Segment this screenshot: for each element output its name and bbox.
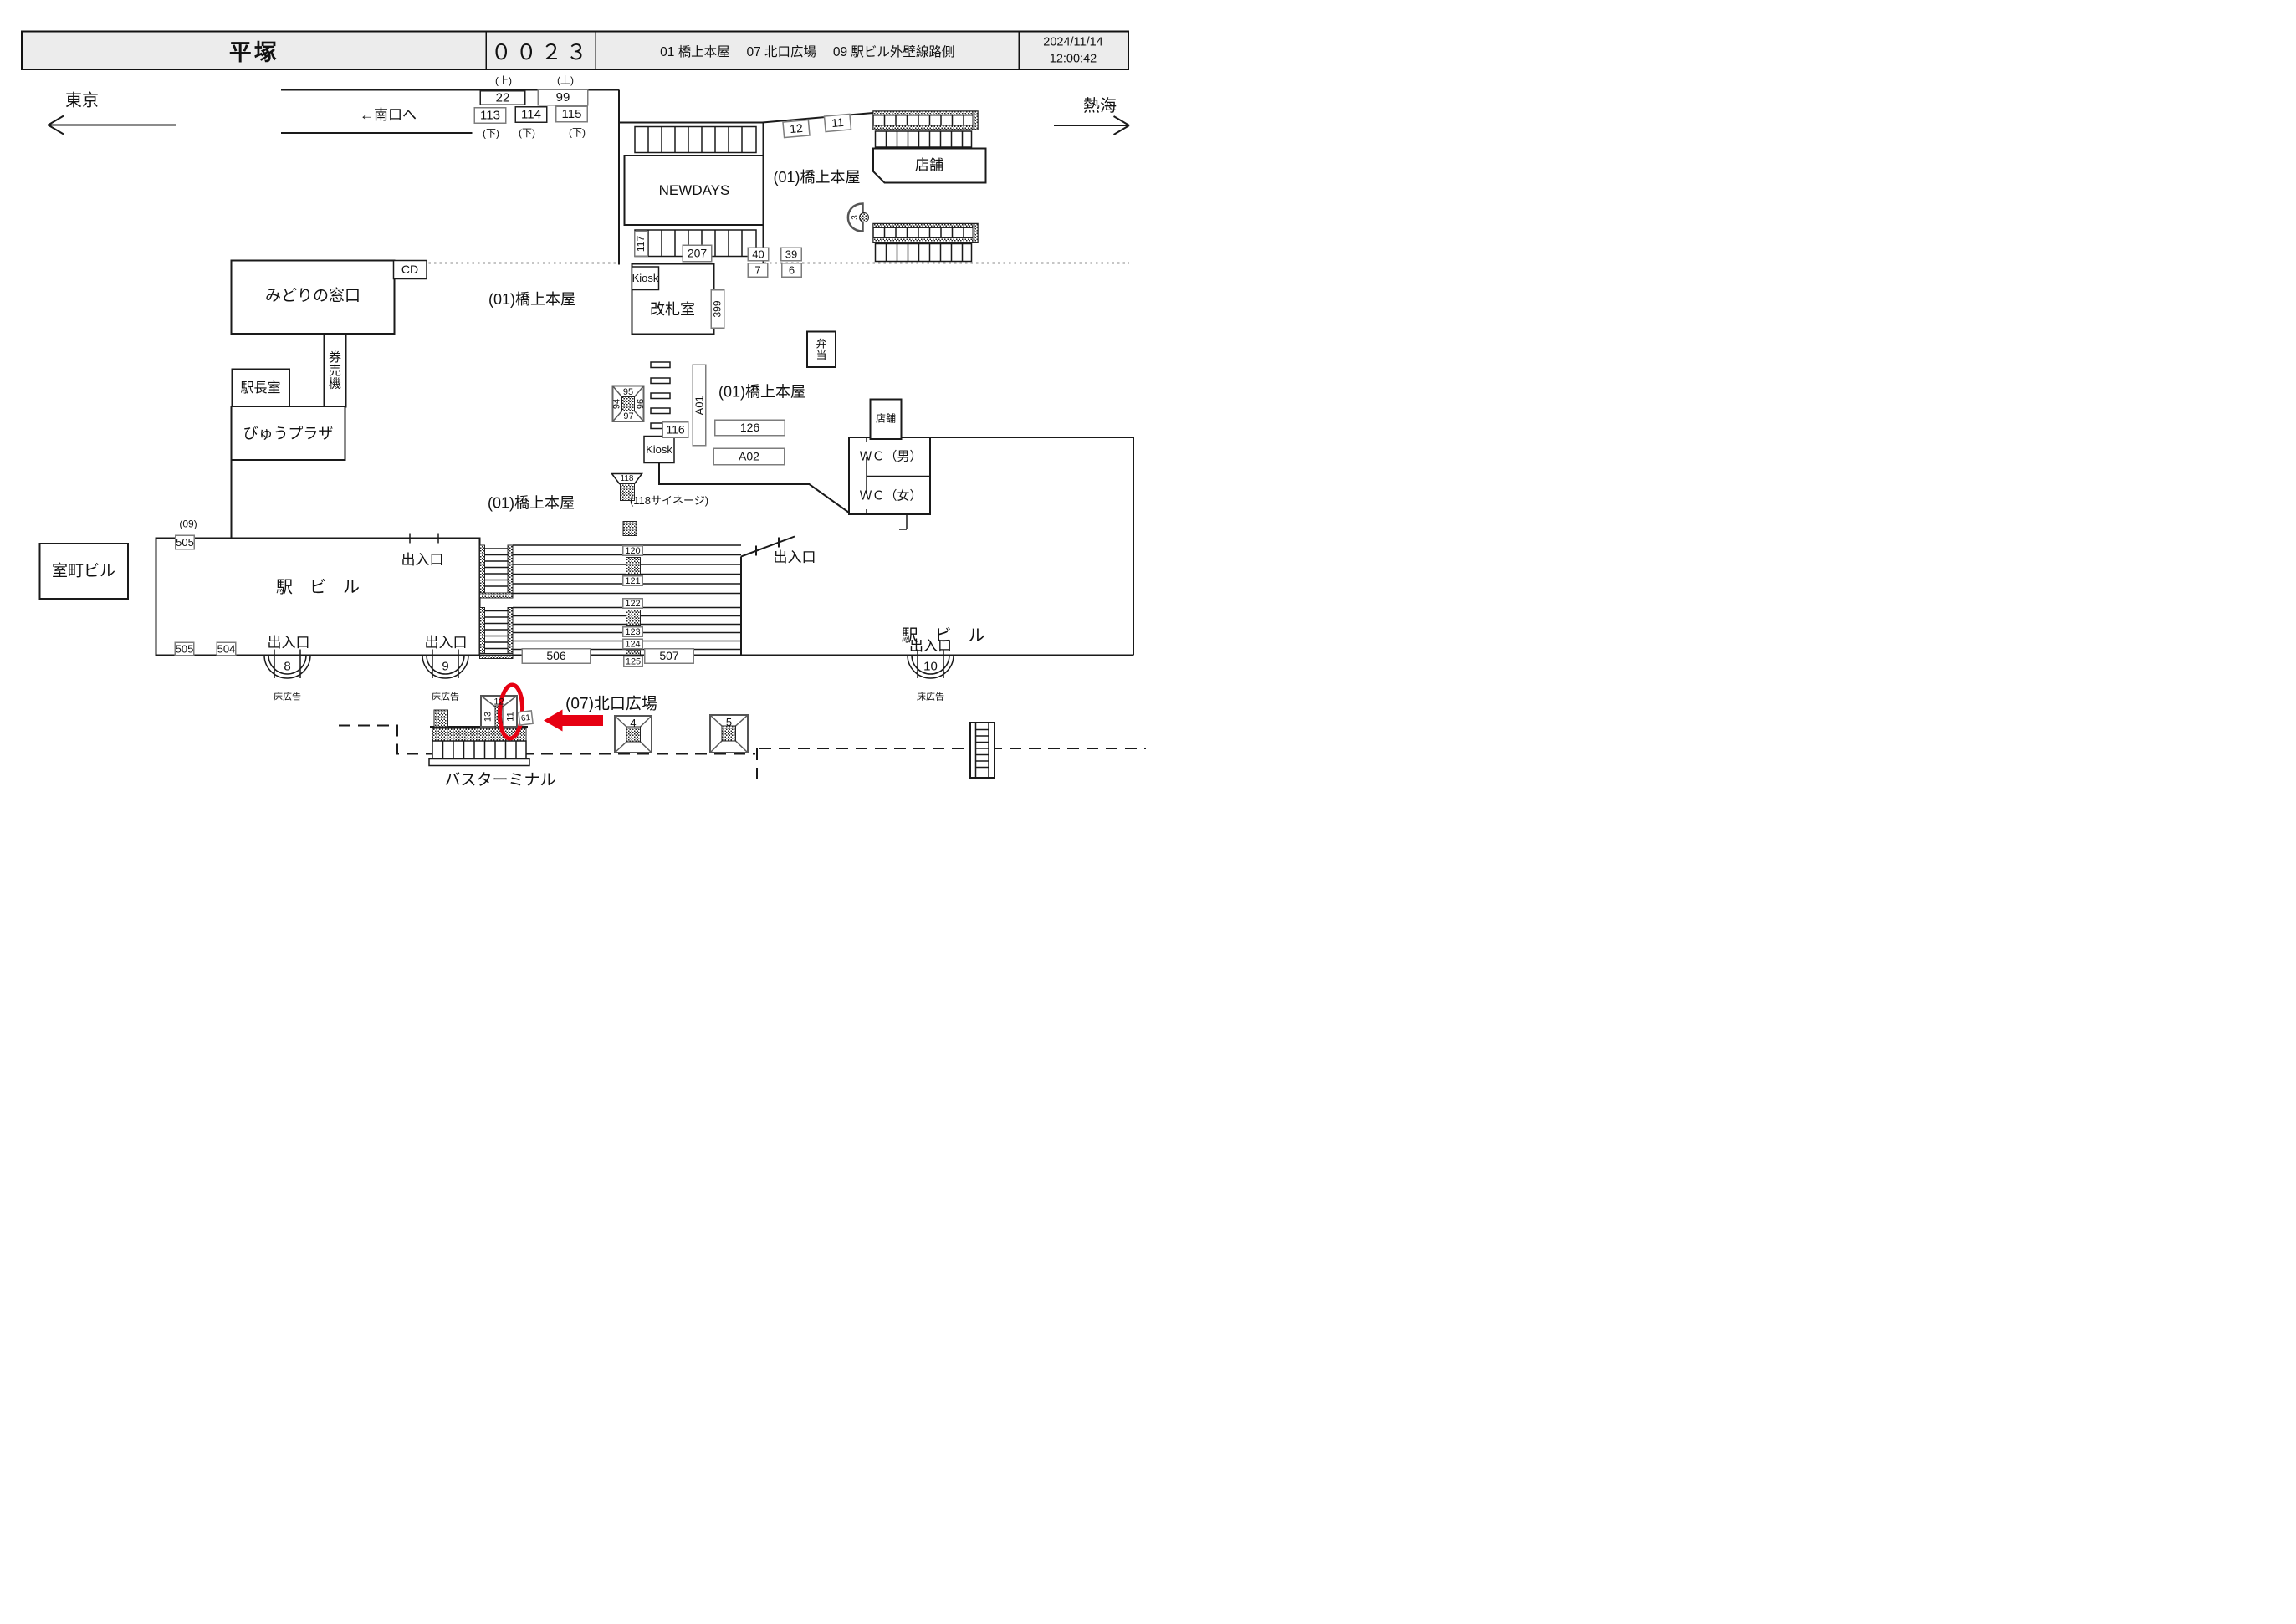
station-name: 平塚 xyxy=(23,33,487,69)
map-code: ００２３ xyxy=(487,33,596,69)
ekicho: 駅長室 xyxy=(240,381,280,396)
ad-120: 120 xyxy=(622,545,643,556)
ekibiru-left: 駅 ビ ル xyxy=(276,579,360,596)
ladder-stairs xyxy=(970,723,995,778)
ad-7: 7 xyxy=(748,263,769,278)
floor-ad-2: 床広告 xyxy=(432,692,459,702)
ad-117: 117 xyxy=(634,231,648,257)
ad-506: 506 xyxy=(522,648,591,664)
p5: 5 xyxy=(726,717,732,728)
header-bar: 平塚 ００２３ 01 橋上本屋 07 北口広場 09 駅ビル外壁線路側 2024… xyxy=(21,31,1129,71)
p94: 94 xyxy=(611,399,621,409)
dir-atami: 熱海 xyxy=(1083,97,1117,115)
stairs-ne-1 xyxy=(876,131,972,147)
floor-ad-1: 床広告 xyxy=(274,692,301,702)
wc-women: ＷＣ（女） xyxy=(860,489,923,503)
staircase-1 xyxy=(480,545,514,598)
zone-01-d: (01)橋上本屋 xyxy=(488,495,575,511)
p4: 4 xyxy=(630,718,636,729)
ad-505-09: 505 xyxy=(175,535,195,550)
bp13: 13 xyxy=(483,712,493,722)
p96: 96 xyxy=(635,399,645,409)
zone-01-a: (01)橋上本屋 xyxy=(773,170,860,186)
newdays: NEWDAYS xyxy=(659,183,730,198)
ad-507: 507 xyxy=(644,648,694,664)
exit-9: 9 xyxy=(442,660,448,673)
ticket-gates xyxy=(651,362,670,429)
floor-ad-3: 床広告 xyxy=(917,692,944,702)
view-plaza: びゅうプラザ xyxy=(243,426,334,442)
kaisatsu: 改札室 xyxy=(650,302,695,318)
muromachi: 室町ビル xyxy=(52,563,115,580)
down-1: (下) xyxy=(483,129,499,140)
shop-1: 店舗 xyxy=(915,158,943,173)
ad-207: 207 xyxy=(683,245,713,263)
exit-10: 10 xyxy=(923,660,938,673)
station-ad-map: 平塚 ００２３ 01 橋上本屋 07 北口広場 09 駅ビル外壁線路側 2024… xyxy=(0,0,1148,812)
exit-label-3: 出入口 xyxy=(401,553,444,568)
ad-22: 22 xyxy=(480,90,526,105)
midori: みどりの窓口 xyxy=(265,288,361,304)
time-text: 12:00:42 xyxy=(1050,50,1097,67)
ad-505: 505 xyxy=(175,642,195,656)
shop-2: 店舗 xyxy=(876,414,896,425)
ad-125: 125 xyxy=(623,656,643,667)
station-ad-map-viewport: 平塚 ００２３ 01 橋上本屋 07 北口広場 09 駅ビル外壁線路側 2024… xyxy=(0,0,1148,812)
bp11: 11 xyxy=(505,712,515,721)
ad-A01: A01 xyxy=(693,365,707,447)
ad-504: 504 xyxy=(217,642,237,656)
pillar-small xyxy=(623,522,637,536)
ad-39: 39 xyxy=(780,248,802,262)
ad-113: 113 xyxy=(474,107,507,124)
ad-116: 116 xyxy=(662,421,689,438)
zone-07: (07)北口広場 xyxy=(565,696,657,712)
exit-label-1: 出入口 xyxy=(268,636,310,651)
bento: 弁当 xyxy=(816,338,826,360)
wc-men: ＷＣ（男） xyxy=(860,450,923,463)
ad-11: 11 xyxy=(824,114,852,133)
ad-40: 40 xyxy=(748,248,770,262)
exit-8: 8 xyxy=(284,660,290,673)
ad-126: 126 xyxy=(714,420,785,437)
arrow-to-atami-icon xyxy=(1054,116,1129,135)
stairs-ne-2 xyxy=(876,244,972,262)
zone-01-c: (01)橋上本屋 xyxy=(718,384,805,400)
escalator-1 xyxy=(873,111,978,115)
up-1: (上) xyxy=(495,76,512,87)
kiosk-2: Kiosk xyxy=(646,444,672,456)
up-2: (上) xyxy=(557,75,574,86)
p97: 97 xyxy=(623,411,633,421)
kenbaiki: 券売機 xyxy=(329,350,341,390)
to-south-exit: ←南口へ xyxy=(360,108,417,123)
datetime: 2024/11/14 12:00:42 xyxy=(1020,33,1127,69)
cd: CD xyxy=(401,263,418,276)
ad-123: 123 xyxy=(622,626,643,637)
exit-label-2: 出入口 xyxy=(425,636,468,651)
date-text: 2024/11/14 xyxy=(1043,34,1103,51)
ad-12: 12 xyxy=(782,120,811,139)
sign-118: 118 xyxy=(621,474,634,483)
ad-115: 115 xyxy=(555,106,588,123)
ad-6: 6 xyxy=(781,263,802,278)
ad-99: 99 xyxy=(538,89,589,106)
p95: 95 xyxy=(623,387,633,397)
staircase-2 xyxy=(480,608,514,659)
ad-114: 114 xyxy=(515,106,548,123)
arrow-to-tokyo-icon xyxy=(49,116,176,135)
ad-A02: A02 xyxy=(713,448,785,466)
down-2: (下) xyxy=(519,128,535,139)
signage-note: (118サイネージ) xyxy=(630,495,708,507)
exit-label-4: 出入口 xyxy=(774,550,816,565)
exit-label-5: 出入口 xyxy=(909,639,952,654)
elevator-3: 3 xyxy=(851,215,860,220)
ad-124: 124 xyxy=(622,639,643,650)
ad-122: 122 xyxy=(622,598,643,609)
down-3: (下) xyxy=(569,128,586,139)
kiosk-1: Kiosk xyxy=(632,273,659,284)
dir-tokyo: 東京 xyxy=(65,92,99,110)
bp12: 12 xyxy=(493,697,504,707)
escalator-2 xyxy=(873,224,978,228)
zone-01-b: (01)橋上本屋 xyxy=(488,292,575,308)
zone-09: (09) xyxy=(179,519,197,530)
stairs-north xyxy=(635,127,756,153)
ad-61: 61 xyxy=(518,710,534,726)
ad-121: 121 xyxy=(622,575,643,586)
bus-terminal: バスターミナル xyxy=(444,772,555,789)
highlight-arrow-icon xyxy=(544,710,603,732)
zone-legend: 01 橋上本屋 07 北口広場 09 駅ビル外壁線路側 xyxy=(596,33,1020,69)
ad-399: 399 xyxy=(711,289,725,329)
